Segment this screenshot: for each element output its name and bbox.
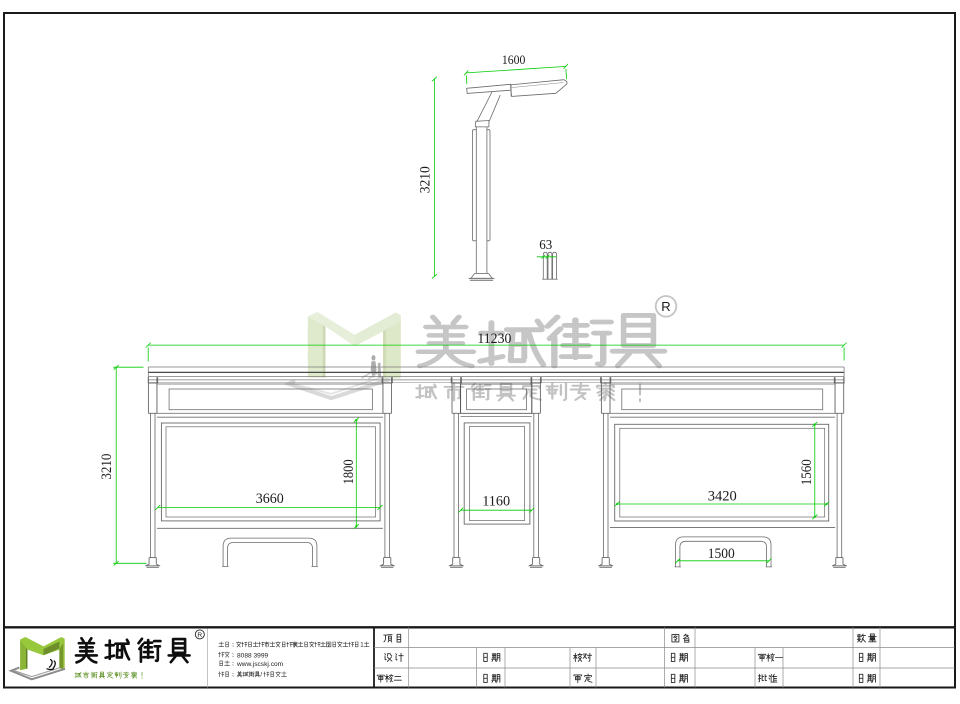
svg-text:1160: 1160 [482, 494, 510, 510]
svg-text:R: R [661, 299, 670, 314]
svg-text:3420: 3420 [708, 489, 737, 505]
svg-text:1560: 1560 [799, 459, 815, 485]
svg-text:63: 63 [539, 237, 552, 252]
svg-text:1: 1 [360, 643, 364, 649]
svg-text:www.jscskj.com: www.jscskj.com [236, 661, 284, 668]
svg-text:1800: 1800 [341, 459, 357, 484]
svg-text:R: R [197, 632, 202, 639]
svg-text:3210: 3210 [99, 454, 115, 480]
svg-text:1600: 1600 [502, 52, 526, 67]
svg-text:3210: 3210 [418, 166, 434, 193]
svg-text:3660: 3660 [256, 491, 284, 507]
svg-text:/: / [260, 672, 262, 678]
svg-text:8088 3999: 8088 3999 [237, 652, 269, 659]
svg-text:1500: 1500 [708, 546, 735, 562]
svg-text:11230: 11230 [477, 331, 511, 347]
